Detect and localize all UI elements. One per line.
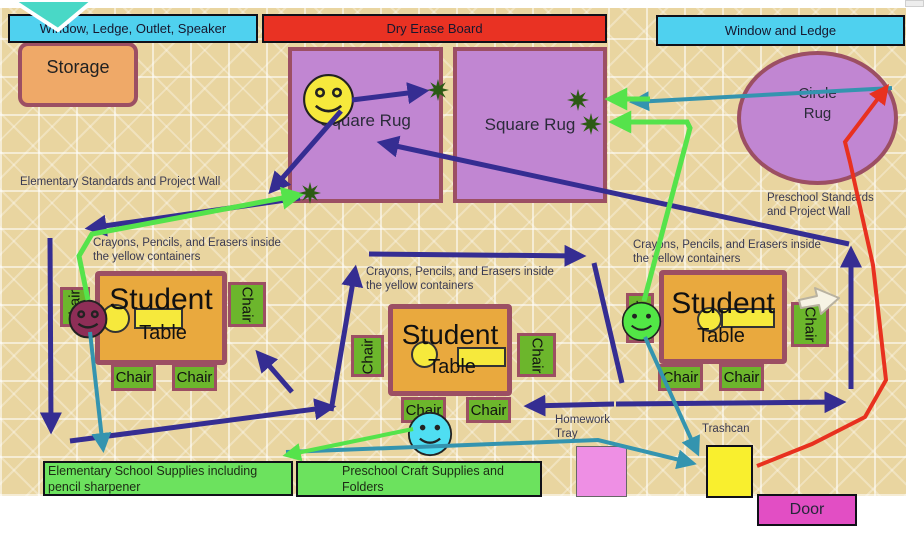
- elementary-standards-text: Elementary Standards and Project Wall: [20, 175, 238, 189]
- smiley-face-cyan: [407, 411, 453, 457]
- square-rug-2: Square Rug: [453, 47, 607, 203]
- chair: Chair: [111, 364, 156, 391]
- white-arrow-icon: [797, 284, 841, 318]
- chair: Chair: [172, 364, 217, 391]
- crayons-note-3: Crayons, Pencils, and Erasers inside the…: [633, 238, 828, 266]
- student-table-2-word: Student: [386, 319, 514, 351]
- student-table-3-word: Student: [647, 287, 799, 321]
- smiley-face-green: [621, 301, 662, 342]
- smiley-face-maroon: [68, 299, 108, 339]
- chair: Chair: [351, 335, 384, 377]
- student-table-1-word2: Table: [138, 322, 188, 345]
- scrollbar-corner: [905, 0, 924, 7]
- chair: Chair: [466, 397, 511, 423]
- student-table-3-word2: Table: [694, 325, 748, 348]
- label-dry-erase-board: Dry Erase Board: [262, 14, 607, 43]
- crayons-note-2: Crayons, Pencils, and Erasers inside the…: [366, 265, 561, 293]
- circle-rug-label-1: Circle: [741, 85, 894, 102]
- chair: Chair: [517, 333, 556, 377]
- smiley-face-yellow: [302, 73, 355, 126]
- chair: Chair: [658, 364, 703, 391]
- elementary-supplies-box: Elementary School Supplies including pen…: [43, 461, 293, 496]
- storage-box: Storage: [18, 42, 138, 107]
- circle-rug: Circle Rug: [737, 51, 898, 185]
- label-window-and-ledge: Window and Ledge: [656, 15, 905, 46]
- crayons-note-1: Crayons, Pencils, and Erasers inside the…: [93, 236, 288, 264]
- homework-tray-box: [576, 446, 627, 497]
- preschool-standards-text: Preschool Standards and Project Wall: [767, 191, 895, 219]
- trashcan-box: [706, 445, 753, 498]
- preschool-supplies-box: Preschool Craft Supplies and Folders: [296, 461, 542, 497]
- classroom-floor-plan: Window, Ledge, Outlet, Speaker Dry Erase…: [0, 0, 924, 542]
- trashcan-label: Trashcan: [702, 422, 762, 436]
- door-box: Door: [757, 494, 857, 526]
- student-table-2-word2: Table: [428, 356, 476, 379]
- cursor-icon: [6, 0, 98, 32]
- circle-rug-label-2: Rug: [741, 105, 894, 122]
- homework-tray-label: Homework Tray: [555, 413, 627, 441]
- square-rug-2-label: Square Rug: [457, 115, 603, 135]
- chair: Chair: [719, 364, 764, 391]
